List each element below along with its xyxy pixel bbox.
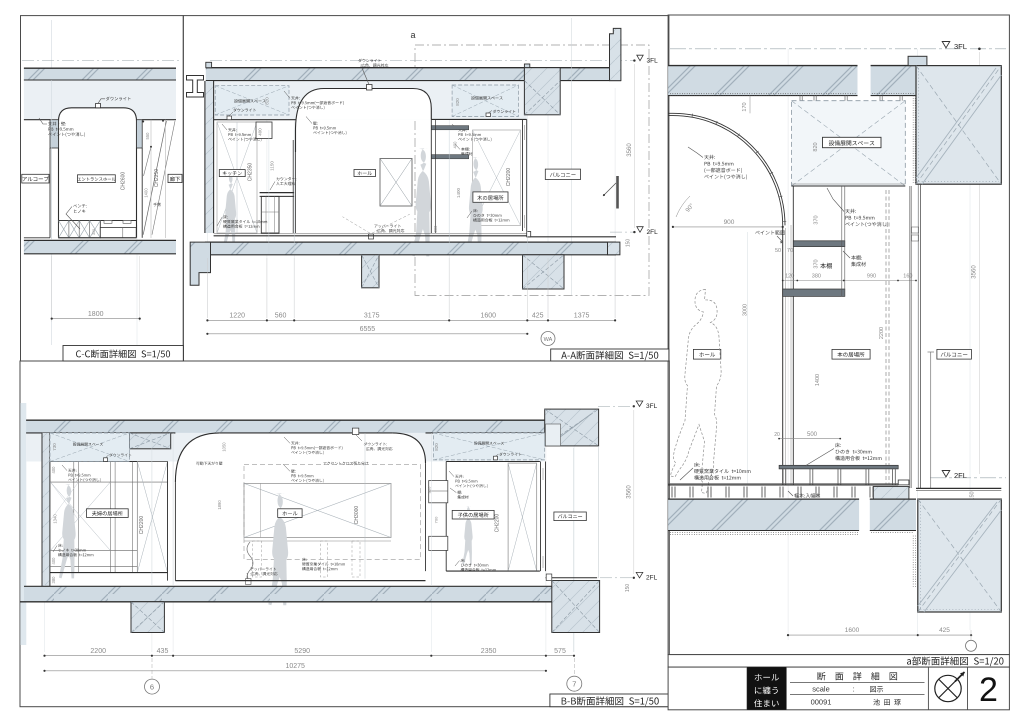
svg-text:2FL: 2FL bbox=[646, 575, 658, 582]
svg-text:425: 425 bbox=[532, 313, 544, 320]
svg-text:CH2200: CH2200 bbox=[139, 516, 145, 535]
svg-text:CH2200: CH2200 bbox=[506, 168, 512, 187]
svg-text:820: 820 bbox=[813, 142, 819, 151]
svg-text:5290: 5290 bbox=[294, 648, 310, 655]
svg-text:370: 370 bbox=[814, 215, 820, 224]
svg-text:560: 560 bbox=[275, 313, 287, 320]
svg-text:7: 7 bbox=[572, 679, 576, 688]
svg-text:370: 370 bbox=[814, 259, 820, 268]
svg-text:6: 6 bbox=[150, 682, 154, 691]
svg-text:120: 120 bbox=[785, 274, 794, 280]
svg-text:575: 575 bbox=[554, 648, 566, 655]
svg-text:scale: scale bbox=[812, 685, 830, 694]
svg-text:70: 70 bbox=[787, 248, 793, 254]
svg-text:a: a bbox=[410, 30, 415, 40]
svg-text:3FL: 3FL bbox=[954, 42, 967, 51]
svg-text:990: 990 bbox=[867, 274, 876, 280]
svg-text:300: 300 bbox=[433, 225, 438, 233]
svg-text:1400: 1400 bbox=[815, 374, 821, 386]
svg-text:20: 20 bbox=[774, 432, 780, 438]
svg-text:400: 400 bbox=[51, 466, 56, 474]
svg-text:1400: 1400 bbox=[456, 187, 461, 198]
svg-text:500: 500 bbox=[807, 432, 818, 438]
svg-text:400: 400 bbox=[453, 141, 458, 149]
svg-text::: : bbox=[853, 685, 855, 694]
svg-text:435: 435 bbox=[157, 648, 169, 655]
svg-text:2350: 2350 bbox=[481, 648, 497, 655]
svg-text:CH2600: CH2600 bbox=[121, 172, 127, 191]
svg-text:10275: 10275 bbox=[285, 663, 305, 670]
svg-text:150: 150 bbox=[626, 239, 632, 248]
svg-text:3560: 3560 bbox=[627, 143, 633, 157]
svg-text:3FL: 3FL bbox=[647, 58, 659, 65]
svg-text:400: 400 bbox=[258, 128, 263, 136]
svg-text:900: 900 bbox=[724, 219, 735, 226]
svg-text:3175: 3175 bbox=[364, 313, 380, 320]
svg-text:2: 2 bbox=[979, 671, 998, 709]
svg-text:2200: 2200 bbox=[90, 648, 106, 655]
svg-text:3FL: 3FL bbox=[646, 403, 658, 410]
svg-text:350: 350 bbox=[92, 229, 96, 235]
svg-text:50: 50 bbox=[775, 248, 781, 254]
svg-text:700: 700 bbox=[434, 516, 439, 523]
svg-text:1375: 1375 bbox=[574, 313, 590, 320]
svg-text:1340: 1340 bbox=[53, 514, 58, 524]
svg-text:2FL: 2FL bbox=[954, 471, 967, 480]
svg-text:425: 425 bbox=[939, 627, 950, 634]
svg-text:1600: 1600 bbox=[845, 627, 860, 634]
svg-text:6555: 6555 bbox=[360, 326, 376, 333]
svg-text:150: 150 bbox=[625, 584, 631, 593]
svg-text:1600: 1600 bbox=[481, 313, 497, 320]
svg-text:2200: 2200 bbox=[879, 327, 885, 339]
svg-text:380: 380 bbox=[812, 274, 821, 280]
svg-text:400: 400 bbox=[51, 557, 56, 565]
svg-text:00091: 00091 bbox=[811, 698, 832, 707]
svg-text:1800: 1800 bbox=[88, 311, 104, 318]
svg-text:730: 730 bbox=[52, 443, 57, 451]
svg-text:820: 820 bbox=[265, 97, 270, 105]
svg-text:1150: 1150 bbox=[270, 161, 275, 171]
svg-text:1050: 1050 bbox=[221, 442, 226, 452]
svg-text:820: 820 bbox=[455, 98, 460, 106]
svg-text:1400: 1400 bbox=[144, 188, 149, 198]
svg-text:CH2200: CH2200 bbox=[495, 514, 501, 533]
svg-text:820: 820 bbox=[434, 443, 439, 451]
svg-text:1890: 1890 bbox=[217, 500, 222, 510]
svg-text:380: 380 bbox=[51, 576, 56, 584]
svg-text:160: 160 bbox=[903, 274, 912, 280]
svg-text:CH2350: CH2350 bbox=[248, 163, 254, 182]
svg-text:3560: 3560 bbox=[627, 485, 633, 499]
svg-text:550: 550 bbox=[145, 132, 150, 140]
svg-text:170: 170 bbox=[742, 102, 748, 111]
svg-text:1220: 1220 bbox=[229, 313, 245, 320]
svg-text:800: 800 bbox=[427, 486, 432, 493]
svg-text:CH3000: CH3000 bbox=[354, 506, 360, 525]
svg-text:2FL: 2FL bbox=[647, 229, 659, 236]
svg-text:3560: 3560 bbox=[972, 265, 978, 279]
svg-text:WA: WA bbox=[544, 337, 553, 343]
